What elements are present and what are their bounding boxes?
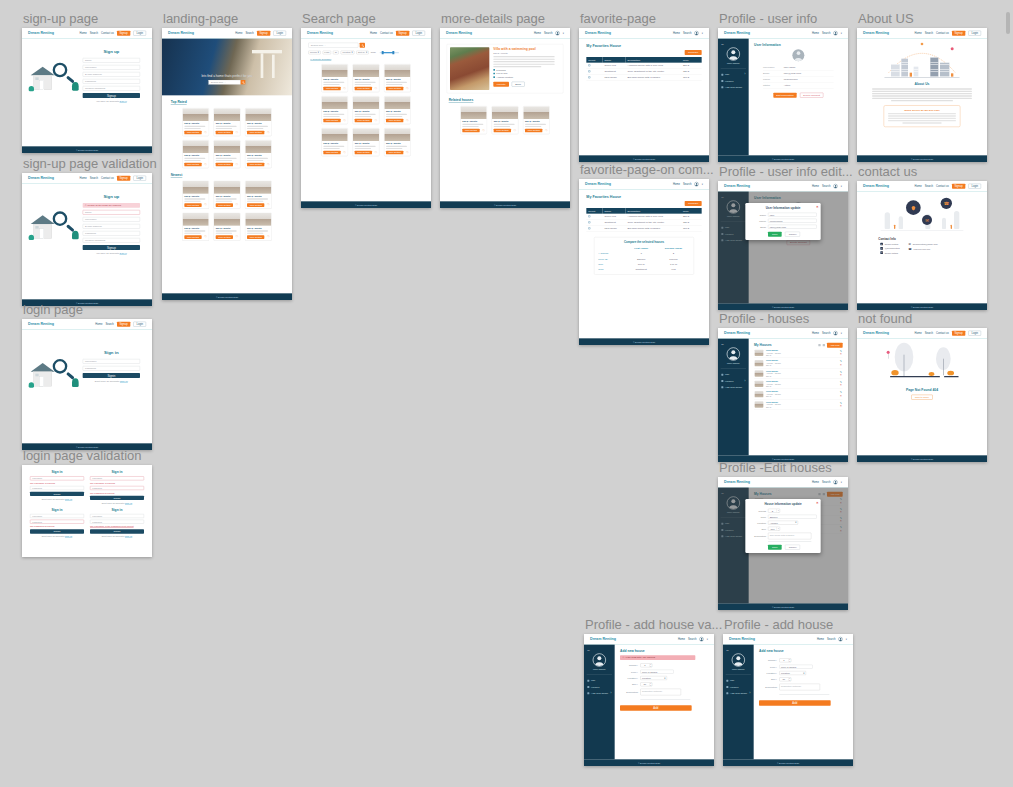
frame-title[interactable]: landing-page	[163, 11, 238, 26]
house-card[interactable]: 250 $ / MonthMore Details♡	[245, 108, 272, 136]
username-input[interactable]: Username	[30, 476, 84, 480]
username-input[interactable]: Username	[83, 359, 140, 364]
site-logo[interactable]: Dream Renting	[585, 31, 611, 35]
more-details-button[interactable]: More Details	[323, 151, 340, 155]
favorite-heart-icon[interactable]: ♡	[406, 119, 409, 122]
more-details-button[interactable]: More Details	[462, 129, 479, 133]
results-count-link[interactable]: 9 Results available	[310, 58, 331, 61]
house-list-item[interactable]: villa houseAmman - Jordan250 $✎×	[754, 368, 843, 378]
add-button[interactable]: Add	[759, 700, 831, 705]
password-input[interactable]: Password	[30, 486, 84, 490]
house-list-item[interactable]: villa houseAmman - Jordan250 $✎×	[754, 379, 843, 389]
user-avatar-icon[interactable]	[694, 182, 698, 186]
confirm-password-input[interactable]: Confirm password	[83, 238, 140, 243]
artboard-profile-info-edit[interactable]: Dream Renting Home Search ▾ ← User Name …	[718, 181, 848, 310]
house-card[interactable]: 250 $ / MonthMore Details♡	[182, 213, 209, 241]
signup-link[interactable]: Sign up	[65, 535, 72, 537]
location-filter-select[interactable]: Location▾	[341, 51, 355, 55]
nav-home-link[interactable]: Home	[812, 331, 819, 334]
nav-search-link[interactable]: Search	[827, 637, 835, 640]
sort-filter-select[interactable]: Sort by▾	[356, 51, 368, 55]
username-input[interactable]: Username	[90, 476, 144, 480]
nav-search-link[interactable]: Search	[822, 480, 830, 483]
more-details-button[interactable]: More Details	[184, 131, 201, 135]
signup-link[interactable]: Sign up	[125, 535, 132, 537]
more-details-button[interactable]: More Details	[247, 235, 264, 239]
location-select[interactable]: Location▾	[640, 676, 667, 680]
back-arrow-icon[interactable]: ←	[726, 647, 751, 651]
password-input[interactable]: Password	[30, 520, 84, 524]
site-logo[interactable]: Dream Renting	[863, 331, 889, 335]
house-list-item[interactable]: villa houseAmman - Jordan250 $✎×	[754, 399, 843, 409]
nav-home-link[interactable]: Home	[235, 31, 242, 34]
more-details-button[interactable]: More Details	[355, 119, 372, 123]
frame-title[interactable]: sign-up page	[23, 11, 98, 26]
site-logo[interactable]: Dream Renting	[585, 182, 611, 186]
signup-submit-button[interactable]: Signup	[83, 93, 140, 98]
frame-title[interactable]: favorite-page	[580, 11, 656, 26]
artboard-signup[interactable]: Dream Renting Home Search Contact us Sig…	[22, 28, 152, 153]
more-details-button[interactable]: More Details	[216, 163, 233, 167]
nav-contact-link[interactable]: Contact us	[936, 331, 949, 334]
nav-search-link[interactable]: Search	[544, 31, 552, 34]
nav-search-link[interactable]: Search	[683, 182, 691, 185]
artboard-details[interactable]: Dream Renting Home Search ▾ Villa with a…	[440, 28, 570, 208]
frame-title[interactable]: more-details page	[441, 11, 545, 26]
frame-title[interactable]: Profile - user info edit...	[719, 164, 853, 179]
favorite-heart-icon[interactable]: ♡	[406, 87, 409, 90]
more-details-button[interactable]: More Details	[386, 87, 403, 91]
user-avatar-icon[interactable]	[838, 637, 842, 641]
hero-search-input[interactable]: Search here ...	[209, 80, 241, 84]
description-textarea[interactable]: description (optional)	[779, 684, 820, 691]
site-logo[interactable]: Dream Renting	[446, 31, 472, 35]
location-select[interactable]: Amman▾	[768, 521, 798, 525]
delete-account-button[interactable]: Delete account	[800, 93, 823, 98]
signup-link[interactable]: Sign up	[65, 498, 72, 500]
phone-input[interactable]: 0770000000	[768, 219, 817, 223]
house-card[interactable]: 250 $ / MonthMore Details♡	[214, 108, 241, 136]
nav-home-link[interactable]: Home	[817, 637, 824, 640]
signup-button[interactable]: Signup	[257, 30, 271, 35]
favorite-heart-icon[interactable]: ♡	[235, 203, 238, 206]
favorite-heart-icon[interactable]: ♡	[343, 87, 346, 90]
frame-title[interactable]: Profile -Edit houses	[719, 460, 832, 475]
canvas-scrollbar[interactable]	[1006, 12, 1010, 34]
name-input[interactable]: Name	[83, 210, 140, 215]
row-checkbox[interactable]	[588, 76, 590, 78]
house-list-item[interactable]: villa houseAmman - Jordan250 $✎×	[754, 348, 843, 358]
email-input[interactable]: E-mail address	[83, 224, 140, 229]
favorite-heart-icon[interactable]: ♡	[513, 129, 516, 132]
artboard-add-house[interactable]: Dream Renting Home Search ▾ ← User Name …	[723, 634, 853, 766]
nav-home-link[interactable]: Home	[678, 637, 685, 640]
confirm-password-input[interactable]: Confirm password	[83, 86, 140, 91]
frame-title[interactable]: Search page	[302, 11, 376, 26]
user-avatar-icon[interactable]	[833, 31, 837, 35]
favorite-button[interactable]: Favorite	[493, 81, 509, 86]
more-details-button[interactable]: More Details	[494, 129, 511, 133]
nav-home-link[interactable]: Home	[673, 182, 680, 185]
contact-item[interactable]: ✉dreamrenting@gmail.com	[908, 243, 937, 246]
house-card[interactable]: 250 $ / MonthMore Details♡	[245, 140, 272, 168]
more-details-button[interactable]: More Details	[184, 203, 201, 207]
house-card[interactable]: 250 $ / MonthMore Details♡	[182, 108, 209, 136]
artboard-about[interactable]: Dream Renting Home Search Contact us Sig…	[857, 28, 987, 162]
house-list-item[interactable]: villa houseAmman - Jordan250 $✎×	[754, 389, 843, 399]
house-card[interactable]: 250 $ / MonthMore Details♡	[214, 181, 241, 209]
favorite-heart-icon[interactable]: ♡	[204, 203, 207, 206]
row-checkbox[interactable]	[588, 64, 590, 66]
artboard-favorite-compare[interactable]: Dream Renting Home Search ▾ My Favorites…	[579, 179, 709, 345]
nav-home-link[interactable]: Home	[812, 480, 819, 483]
cancel-button[interactable]: Cancel	[785, 232, 800, 237]
favorite-heart-icon[interactable]: ♡	[267, 235, 270, 238]
site-logo[interactable]: Dream Renting	[863, 31, 889, 35]
house-card[interactable]: 250 $ / MonthMore Details♡	[353, 96, 380, 124]
site-logo[interactable]: Dream Renting	[863, 184, 889, 188]
back-arrow-icon[interactable]: ←	[721, 341, 746, 345]
nav-contact-link[interactable]: Contact us	[101, 31, 114, 34]
stepper-down-icon[interactable]: ▾	[788, 680, 791, 682]
house-card[interactable]: 250 $ / MonthMore Details♡	[182, 140, 209, 168]
contact-item[interactable]: T@dreamrenting	[880, 247, 899, 250]
nav-home-link[interactable]: Home	[915, 31, 922, 34]
artboard-add-house-validation[interactable]: Dream Renting Home Search ▾ ← User Name …	[584, 634, 714, 766]
slider-handle[interactable]	[382, 51, 384, 54]
login-button[interactable]: Login	[133, 30, 146, 35]
signup-button[interactable]: Signup	[952, 30, 966, 35]
artboard-contact[interactable]: Dream Renting Home Search Contact us Sig…	[857, 181, 987, 310]
nav-home-link[interactable]: Home	[915, 331, 922, 334]
artboard-notfound[interactable]: Dream Renting Home Search Contact us Sig…	[857, 328, 987, 462]
login-button[interactable]: Login	[968, 183, 981, 188]
size-stepper[interactable]: 170▴▾	[768, 527, 780, 531]
site-logo[interactable]: Dream Renting	[28, 322, 54, 326]
nav-contact-link[interactable]: Contact us	[936, 184, 949, 187]
stepper-down-icon[interactable]: ▾	[777, 529, 780, 531]
stepper-down-icon[interactable]: ▾	[777, 511, 780, 513]
price-to-input[interactable]: To	[333, 51, 339, 55]
save-button[interactable]: Save	[768, 545, 782, 550]
favorite-heart-icon[interactable]: ♡	[267, 203, 270, 206]
favorite-heart-icon[interactable]: ♡	[374, 119, 377, 122]
login-button[interactable]: Login	[968, 330, 981, 335]
size-stepper[interactable]: 10▴▾	[779, 677, 791, 681]
favorite-heart-icon[interactable]: ♡	[343, 119, 346, 122]
more-details-button[interactable]: More Details	[247, 163, 264, 167]
back-to-home-button[interactable]: back to home	[911, 395, 932, 400]
site-logo[interactable]: Dream Renting	[724, 480, 750, 484]
rooms-stepper[interactable]: 1▴▾	[779, 658, 791, 662]
sidebar-item-add-house[interactable]: Add new house	[721, 384, 746, 390]
stepper-down-icon[interactable]: ▾	[788, 661, 791, 663]
user-avatar-icon[interactable]	[833, 184, 837, 188]
favorite-heart-icon[interactable]: ♡	[267, 163, 270, 166]
house-card[interactable]: 250 $ / MonthMore Details♡	[214, 140, 241, 168]
more-details-button[interactable]: More Details	[247, 203, 264, 207]
back-button[interactable]: Back	[512, 81, 525, 86]
signup-button[interactable]: Signup	[117, 175, 131, 180]
hero-search-button[interactable]	[241, 80, 246, 84]
artboard-login[interactable]: Dream Renting Home Search Signup Login S…	[22, 319, 152, 450]
password-input[interactable]: Password	[90, 520, 144, 524]
site-logo[interactable]: Dream Renting	[590, 637, 616, 641]
stepper-down-icon[interactable]: ▾	[649, 685, 652, 687]
signup-submit-button[interactable]: Signup	[83, 245, 140, 250]
artboard-login-validation[interactable]: Sign in Username The Username is require…	[22, 465, 152, 557]
nav-search-link[interactable]: Search	[822, 184, 830, 187]
artboard-profile-info[interactable]: Dream Renting Home Search ▾ ← User Name …	[718, 28, 848, 162]
house-card[interactable]: 250 $ / MonthMore Details♡	[353, 128, 380, 156]
delete-icon[interactable]: ×	[840, 405, 842, 408]
nav-home-link[interactable]: Home	[915, 184, 922, 187]
save-button[interactable]: Save	[768, 232, 782, 237]
favorite-heart-icon[interactable]: ♡	[235, 163, 238, 166]
login-submit-button[interactable]: Signin	[90, 529, 144, 533]
username-input[interactable]: Username	[30, 514, 84, 518]
frame-title[interactable]: favorite-page-on com...	[580, 162, 714, 177]
nav-home-link[interactable]: Home	[812, 184, 819, 187]
more-details-button[interactable]: More Details	[184, 163, 201, 167]
edit-information-button[interactable]: Edit information	[773, 93, 796, 98]
username-input[interactable]: Username	[83, 217, 140, 222]
slider-handle[interactable]	[392, 51, 394, 54]
login-submit-button[interactable]: Signin	[30, 529, 84, 533]
user-avatar-icon[interactable]	[555, 31, 559, 35]
signup-button[interactable]: Signup	[396, 30, 410, 35]
favorite-heart-icon[interactable]: ♡	[343, 151, 346, 154]
more-details-button[interactable]: More Details	[355, 151, 372, 155]
house-card[interactable]: 250 $ / MonthMore Details♡	[492, 106, 519, 134]
price-input[interactable]: 250000	[768, 515, 817, 519]
password-input[interactable]: Password	[83, 79, 140, 84]
nav-search-link[interactable]: Search	[245, 31, 253, 34]
close-icon[interactable]: ×	[816, 501, 818, 505]
frame-title[interactable]: login page	[23, 302, 83, 317]
frame-title[interactable]: Profile - houses	[719, 311, 809, 326]
contact-item[interactable]: Gdream-renting	[880, 243, 899, 246]
site-logo[interactable]: Dream Renting	[28, 176, 54, 180]
compare-button[interactable]: Compare	[685, 201, 702, 206]
nav-contact-link[interactable]: Contact us	[936, 31, 949, 34]
favorite-heart-icon[interactable]: ♡	[374, 151, 377, 154]
back-arrow-icon[interactable]: ←	[721, 41, 746, 45]
sidebar-item-add-house[interactable]: Add new house›	[726, 690, 751, 696]
site-logo[interactable]: Dream Renting	[724, 331, 750, 335]
favorite-heart-icon[interactable]: ♡	[235, 131, 238, 134]
favorite-heart-icon[interactable]: ♡	[545, 129, 548, 132]
login-submit-button[interactable]: Signin	[30, 492, 84, 496]
nav-search-link[interactable]: Search	[90, 176, 98, 179]
frame-title[interactable]: not found	[858, 311, 912, 326]
delete-icon[interactable]: ×	[840, 394, 842, 397]
signup-button[interactable]: Signup	[117, 321, 131, 326]
house-card[interactable]: 250 $ / MonthMore Details♡	[321, 96, 348, 124]
site-logo[interactable]: Dream Renting	[724, 31, 750, 35]
house-card[interactable]: 250 $ / MonthMore Details♡	[182, 181, 209, 209]
stepper-down-icon[interactable]: ▾	[649, 666, 652, 668]
row-checkbox[interactable]	[588, 215, 590, 217]
more-details-button[interactable]: More Details	[386, 151, 403, 155]
nav-search-link[interactable]: Search	[822, 31, 830, 34]
signup-button[interactable]: Signup	[952, 183, 966, 188]
delete-icon[interactable]: ×	[840, 353, 842, 356]
frame-title[interactable]: Profile - add house va...	[585, 617, 722, 632]
nav-search-link[interactable]: Search	[688, 637, 696, 640]
nav-home-link[interactable]: Home	[534, 31, 541, 34]
artboard-landing[interactable]: Dream Renting Home Search Signup Login l…	[162, 28, 292, 300]
artboard-profile-houses[interactable]: Dream Renting Home Search ▾ ← User Name …	[718, 328, 848, 462]
login-button[interactable]: Login	[412, 30, 425, 35]
nav-search-link[interactable]: Search	[105, 322, 113, 325]
name-input[interactable]: Name	[83, 58, 140, 63]
back-arrow-icon[interactable]: ←	[587, 647, 612, 651]
favorite-heart-icon[interactable]: ♡	[204, 235, 207, 238]
frame-title[interactable]: contact us	[858, 164, 917, 179]
nav-search-link[interactable]: Search	[925, 184, 933, 187]
username-input[interactable]: Username	[90, 514, 144, 518]
cancel-button[interactable]: Cancel	[785, 545, 800, 550]
close-icon[interactable]: ×	[816, 205, 818, 209]
artboard-favorite[interactable]: Dream Renting Home Search ▾ My Favorites…	[579, 28, 709, 162]
house-card[interactable]: 250 $ / MonthMore Details♡	[245, 181, 272, 209]
row-checkbox[interactable]	[588, 227, 590, 229]
sidebar-item-add-house[interactable]: Add new house›	[587, 690, 612, 696]
nav-home-link[interactable]: Home	[80, 176, 87, 179]
contact-item[interactable]: indream renting	[880, 251, 899, 254]
more-details-button[interactable]: More Details	[355, 87, 372, 91]
name-input[interactable]: user	[768, 213, 817, 217]
user-avatar-icon[interactable]	[694, 31, 698, 35]
login-submit-button[interactable]: Signin	[83, 373, 140, 378]
size-stepper[interactable]: 10▴▾	[640, 682, 652, 686]
user-avatar-icon[interactable]	[699, 637, 703, 641]
signup-button[interactable]: Signup	[952, 330, 966, 335]
house-card[interactable]: 250 $ / MonthMore Details♡	[245, 213, 272, 241]
nav-home-link[interactable]: Home	[370, 31, 377, 34]
house-card[interactable]: 250 $ / MonthMore Details♡	[214, 213, 241, 241]
house-list-item[interactable]: villa houseAmman - Jordan250 $✎×	[754, 358, 843, 368]
price-range-slider[interactable]	[380, 52, 399, 53]
nav-search-link[interactable]: Search	[925, 331, 933, 334]
login-submit-button[interactable]: Signin	[90, 496, 144, 500]
password-input[interactable]: Password	[83, 366, 140, 371]
frame-title[interactable]: Profile - user info	[719, 11, 817, 26]
favorite-heart-icon[interactable]: ♡	[204, 131, 207, 134]
user-avatar-icon[interactable]	[833, 480, 837, 484]
nav-search-link[interactable]: Search	[822, 331, 830, 334]
price-from-input[interactable]: From	[323, 51, 331, 55]
description-textarea[interactable]: description (optional)	[640, 689, 681, 696]
favorite-heart-icon[interactable]: ♡	[267, 131, 270, 134]
rooms-stepper[interactable]: 3▴▾	[768, 509, 780, 513]
price-input[interactable]: price in dollars	[779, 665, 812, 669]
site-logo[interactable]: Dream Renting	[168, 31, 194, 35]
compare-button[interactable]: Compare	[685, 50, 702, 55]
site-logo[interactable]: Dream Renting	[28, 31, 54, 35]
password-input[interactable]: Password	[83, 231, 140, 236]
login-button[interactable]: Login	[133, 175, 146, 180]
house-card[interactable]: 250 $ / MonthMore Details♡	[321, 128, 348, 156]
artboard-profile-edit-house[interactable]: Dream Renting Home Search ▾ ← User Name …	[718, 477, 848, 610]
artboard-signup-validation[interactable]: Dream Renting Home Search Contact us Sig…	[22, 173, 152, 306]
frame-title[interactable]: Profile - add house	[724, 617, 833, 632]
add-button[interactable]: Add	[620, 705, 692, 710]
nav-home-link[interactable]: Home	[80, 31, 87, 34]
login-button[interactable]: Login	[273, 30, 286, 35]
more-details-button[interactable]: More Details	[184, 235, 201, 239]
row-checkbox[interactable]	[588, 221, 590, 223]
more-details-button[interactable]: More Details	[216, 235, 233, 239]
list-view-icon[interactable]	[823, 344, 825, 346]
more-details-button[interactable]: More Details	[386, 119, 403, 123]
email-input[interactable]: E-mail address	[83, 72, 140, 77]
more-details-button[interactable]: More Details	[216, 203, 233, 207]
favorite-heart-icon[interactable]: ♡	[482, 129, 485, 132]
artboard-search[interactable]: Dream Renting Home Contact us Signup Log…	[301, 28, 431, 208]
house-card[interactable]: 250 $ / MonthMore Details♡	[384, 96, 411, 124]
favorite-heart-icon[interactable]: ♡	[374, 87, 377, 90]
row-checkbox[interactable]	[588, 70, 590, 72]
rooms-filter-select[interactable]: Rooms▾	[308, 51, 320, 55]
house-card[interactable]: 250 $ / MonthMore Details♡	[384, 64, 411, 92]
frame-title[interactable]: login page validation	[23, 448, 142, 463]
nav-home-link[interactable]: Home	[812, 31, 819, 34]
nav-home-link[interactable]: Home	[95, 322, 102, 325]
rooms-stepper[interactable]: 1▴▾	[640, 663, 652, 667]
house-card[interactable]: 250 $ / MonthMore Details♡	[353, 64, 380, 92]
signup-button[interactable]: Signup	[117, 30, 131, 35]
signin-link[interactable]: Sign in	[120, 252, 127, 254]
nav-search-link[interactable]: Search	[90, 31, 98, 34]
delete-icon[interactable]: ×	[840, 363, 842, 366]
password-input[interactable]: Password	[90, 486, 144, 490]
nav-home-link[interactable]: Home	[673, 31, 680, 34]
more-details-button[interactable]: More Details	[525, 129, 542, 133]
username-input[interactable]: Username	[83, 65, 140, 70]
more-details-button[interactable]: More Details	[247, 131, 264, 135]
site-logo[interactable]: Dream Renting	[724, 184, 750, 188]
signup-link[interactable]: Sign up	[125, 502, 132, 504]
grid-view-icon[interactable]	[818, 344, 820, 346]
more-details-button[interactable]: More Details	[323, 119, 340, 123]
delete-icon[interactable]: ×	[840, 384, 842, 387]
nav-search-link[interactable]: Search	[683, 31, 691, 34]
nav-contact-link[interactable]: Contact us	[380, 31, 393, 34]
sidebar-item-add-house[interactable]: Add new house	[721, 84, 746, 90]
location-select[interactable]: Location▾	[779, 671, 806, 675]
delete-icon[interactable]: ×	[840, 374, 842, 377]
more-details-button[interactable]: More Details	[323, 87, 340, 91]
favorite-heart-icon[interactable]: ♡	[204, 163, 207, 166]
more-details-button[interactable]: More Details	[216, 131, 233, 135]
house-card[interactable]: 250 $ / MonthMore Details♡	[460, 106, 487, 134]
user-avatar-icon[interactable]	[833, 331, 837, 335]
favorite-heart-icon[interactable]: ♡	[235, 235, 238, 238]
nav-search-link[interactable]: Search	[925, 31, 933, 34]
house-card[interactable]: 250 $ / MonthMore Details♡	[321, 64, 348, 92]
frame-title[interactable]: About US	[858, 11, 914, 26]
frame-title[interactable]: sign-up page validation	[23, 156, 157, 171]
login-button[interactable]: Login	[133, 321, 146, 326]
email-input[interactable]: user@mail.com	[768, 225, 817, 229]
favorite-heart-icon[interactable]: ♡	[406, 151, 409, 154]
site-logo[interactable]: Dream Renting	[729, 637, 755, 641]
login-button[interactable]: Login	[968, 30, 981, 35]
house-card[interactable]: 250 $ / MonthMore Details♡	[384, 128, 411, 156]
contact-item[interactable]: ☎+962 770 000 000	[908, 248, 937, 251]
